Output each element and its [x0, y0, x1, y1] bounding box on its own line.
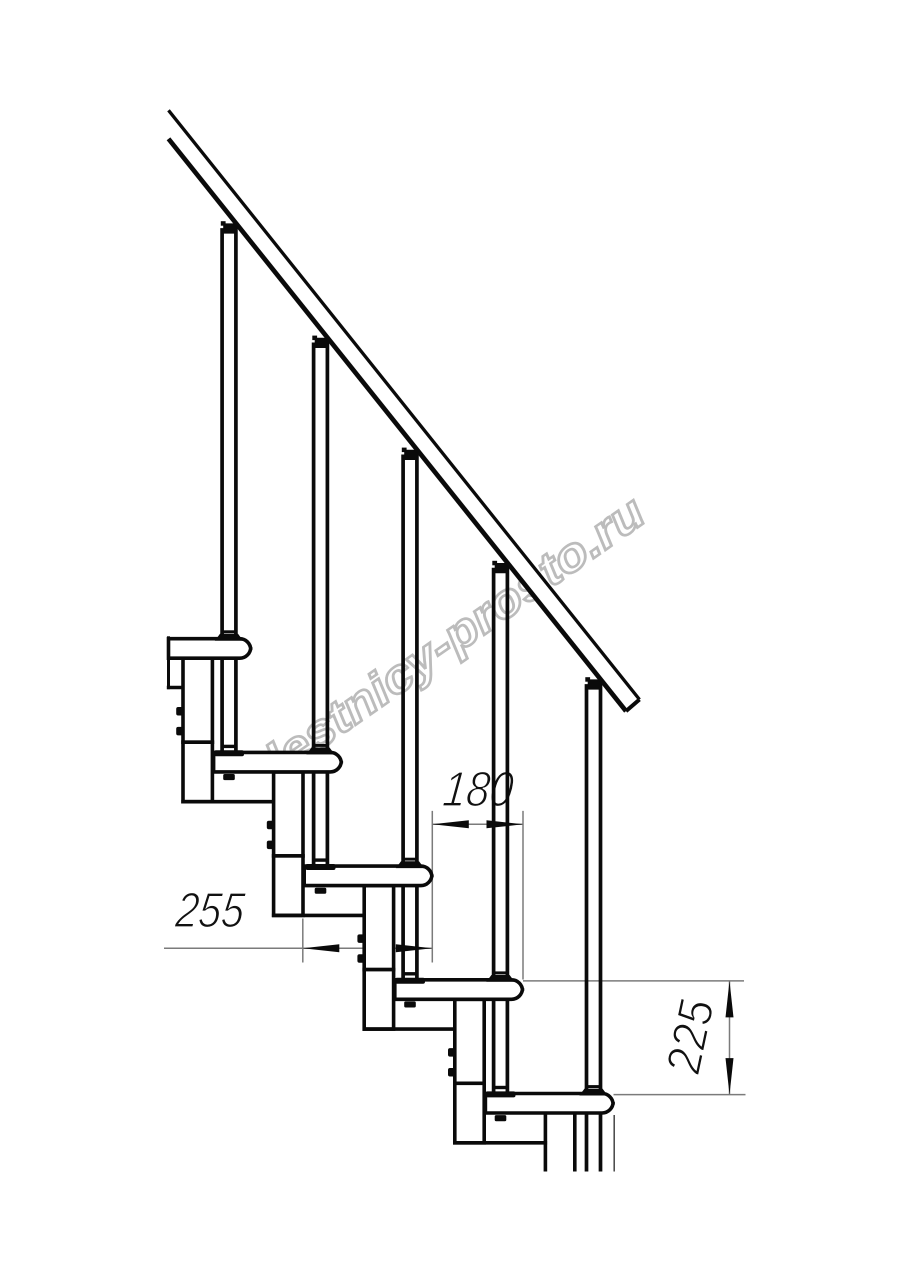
svg-text:180: 180	[440, 761, 516, 817]
svg-text:255: 255	[173, 882, 248, 938]
